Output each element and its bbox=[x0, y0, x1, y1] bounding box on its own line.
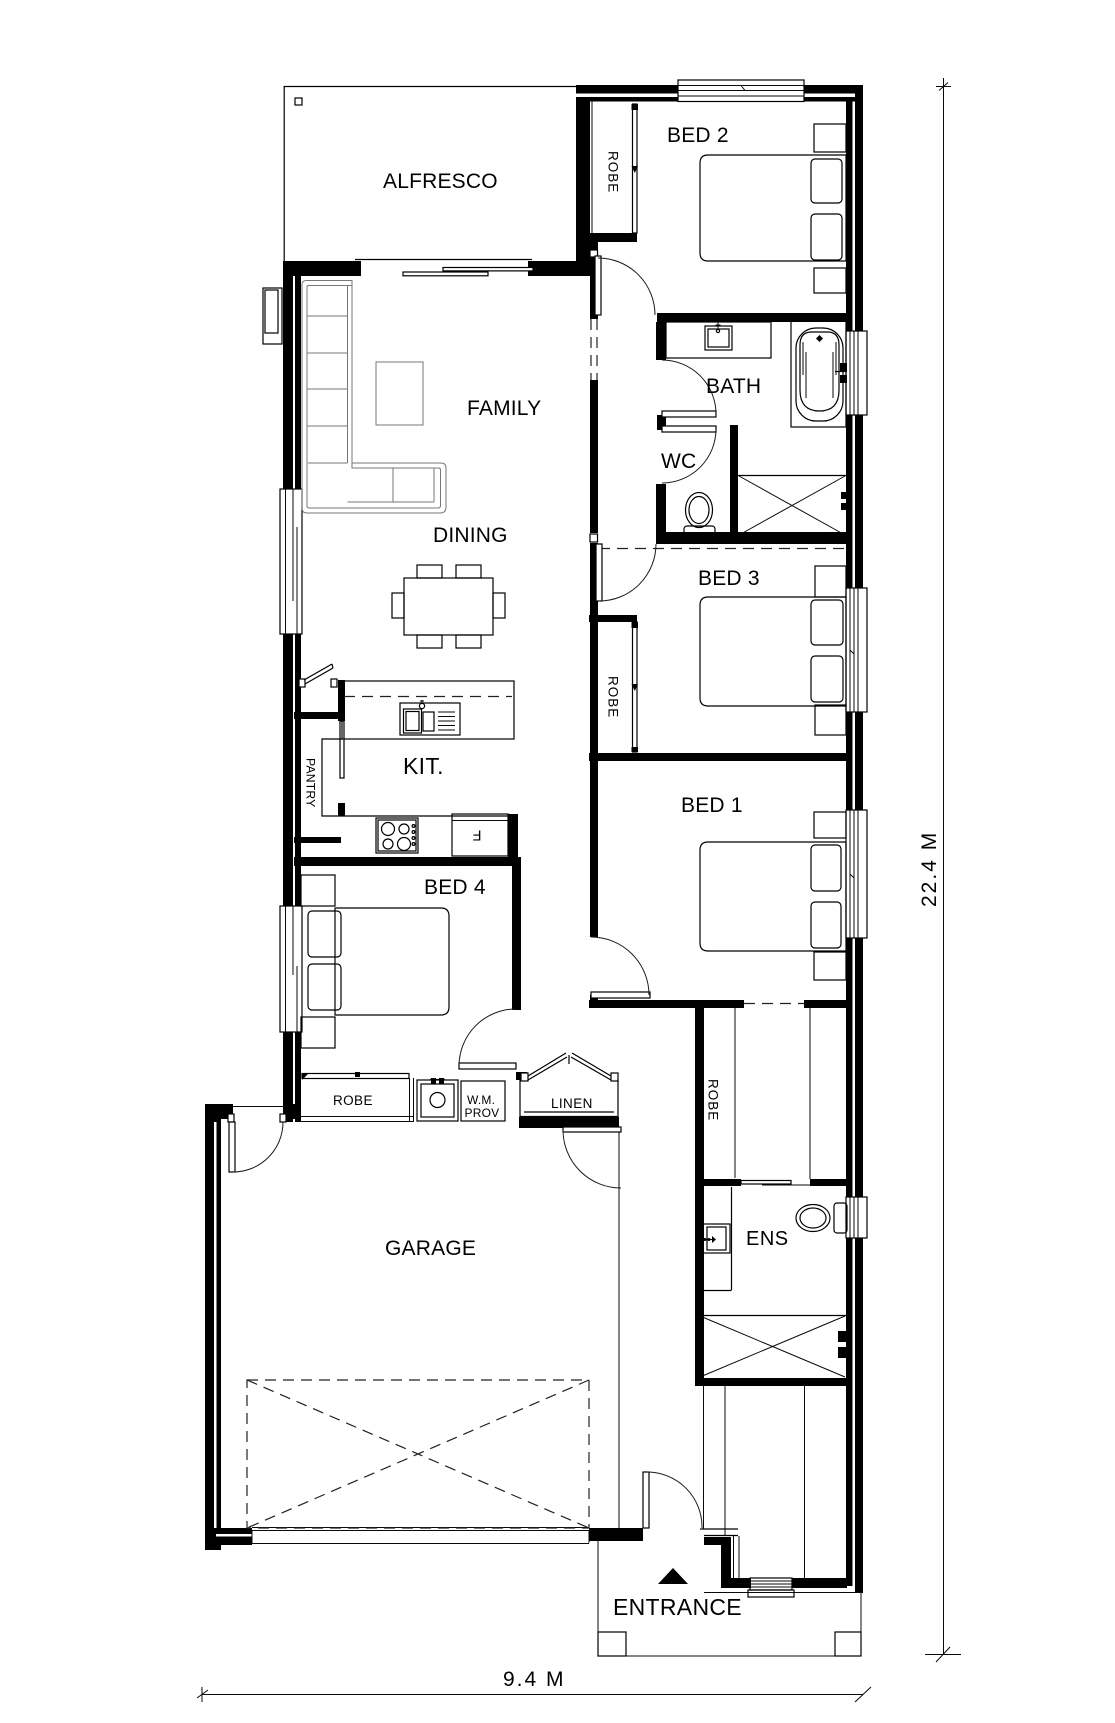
svg-text:ENTRANCE: ENTRANCE bbox=[613, 1594, 742, 1620]
svg-text:BED 2: BED 2 bbox=[667, 124, 729, 147]
svg-text:ALFRESCO: ALFRESCO bbox=[383, 170, 498, 193]
svg-text:ROBE: ROBE bbox=[606, 151, 621, 193]
svg-text:BED 4: BED 4 bbox=[424, 876, 486, 899]
svg-text:PROV: PROV bbox=[465, 1106, 500, 1120]
svg-text:ROBE: ROBE bbox=[333, 1093, 373, 1108]
svg-text:ROBE: ROBE bbox=[706, 1079, 721, 1121]
svg-text:ENS: ENS bbox=[746, 1228, 789, 1250]
svg-text:LINEN: LINEN bbox=[551, 1096, 593, 1111]
svg-text:W.M.: W.M. bbox=[467, 1093, 495, 1107]
svg-text:BATH: BATH bbox=[706, 375, 761, 398]
svg-text:BED 1: BED 1 bbox=[681, 794, 743, 817]
svg-text:GARAGE: GARAGE bbox=[385, 1237, 476, 1260]
svg-text:KIT.: KIT. bbox=[403, 753, 444, 779]
svg-text:F: F bbox=[473, 827, 482, 843]
svg-text:DINING: DINING bbox=[433, 524, 508, 547]
svg-text:WC: WC bbox=[661, 450, 696, 473]
svg-text:ROBE: ROBE bbox=[606, 676, 621, 718]
svg-text:FAMILY: FAMILY bbox=[467, 397, 541, 420]
svg-text:PANTRY: PANTRY bbox=[304, 758, 318, 808]
svg-text:9.4 M: 9.4 M bbox=[503, 1668, 566, 1691]
svg-text:22.4 M: 22.4 M bbox=[918, 831, 941, 907]
svg-text:BED 3: BED 3 bbox=[698, 567, 760, 590]
